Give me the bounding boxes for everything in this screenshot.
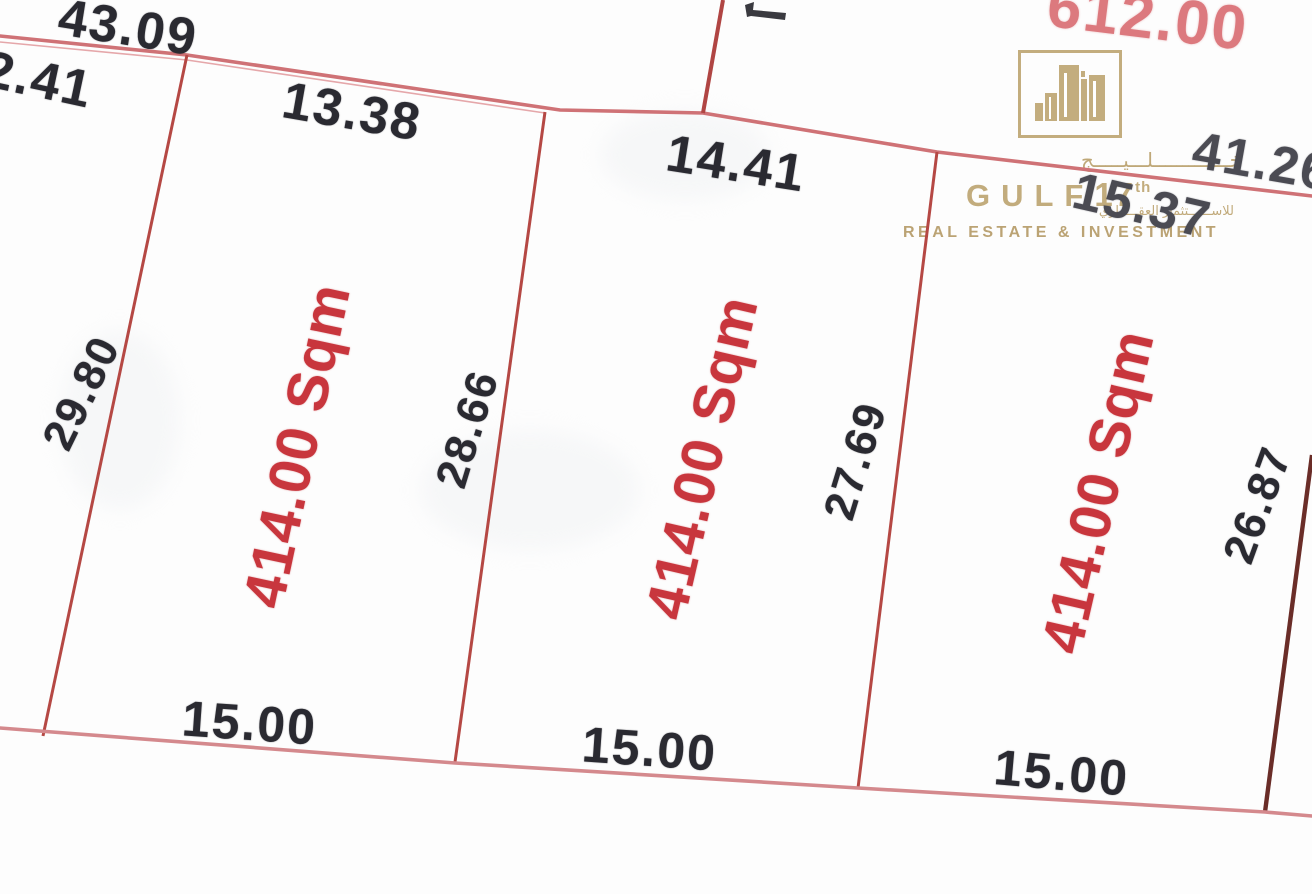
dimension-plot3-bottom: 15.00 bbox=[992, 738, 1132, 808]
plot-survey-sketch: خـــــــــــــلـــيـــــج GULF17th للاسـ… bbox=[0, 0, 1312, 894]
clipped-digit-mark bbox=[745, 2, 786, 20]
dimension-plot2-bottom: 15.00 bbox=[580, 715, 719, 782]
upper-row-divider-line bbox=[703, 0, 723, 113]
dimension-plot1-bottom: 15.00 bbox=[180, 689, 319, 756]
